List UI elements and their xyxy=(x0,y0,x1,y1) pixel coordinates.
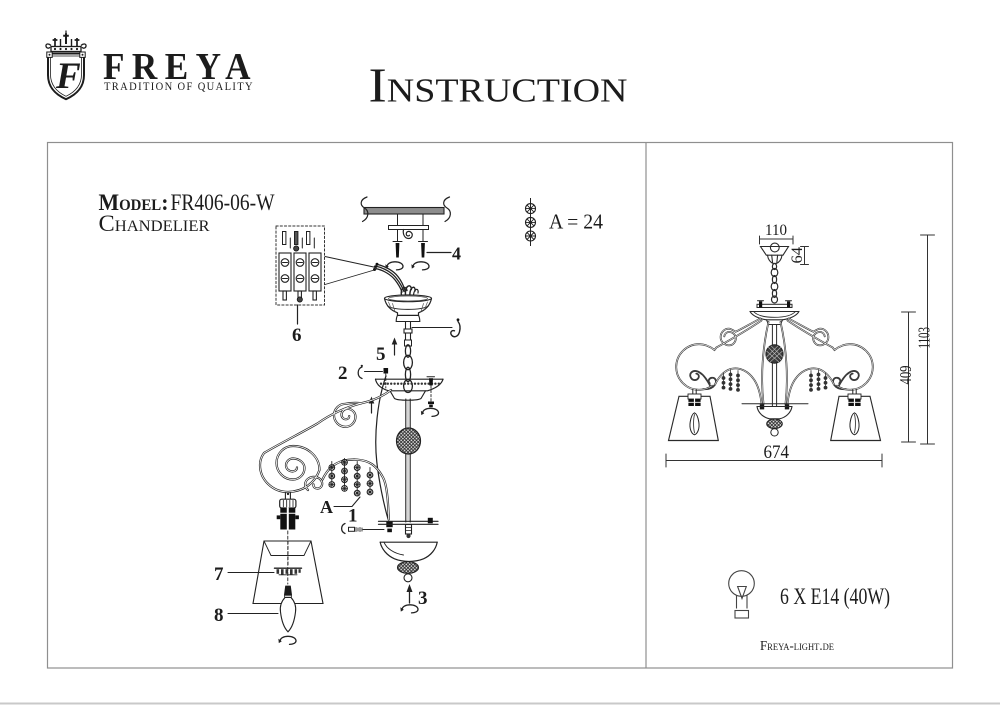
svg-text:1103: 1103 xyxy=(915,327,934,349)
svg-text:4: 4 xyxy=(452,244,461,264)
svg-text:110: 110 xyxy=(765,222,787,239)
svg-text:F: F xyxy=(55,56,81,97)
svg-text:409: 409 xyxy=(896,366,915,385)
svg-text:5: 5 xyxy=(376,344,386,365)
svg-text:A = 24: A = 24 xyxy=(549,210,603,234)
svg-text:6: 6 xyxy=(292,325,302,346)
svg-text:64: 64 xyxy=(789,247,806,264)
svg-text:8: 8 xyxy=(214,605,224,626)
svg-text:Freya-light.de: Freya-light.de xyxy=(760,638,834,653)
svg-text:674: 674 xyxy=(764,443,790,463)
svg-text:6 X E14 (40W): 6 X E14 (40W) xyxy=(780,584,890,609)
svg-text:7: 7 xyxy=(214,564,224,585)
svg-text:TRADITION OF QUALITY: TRADITION OF QUALITY xyxy=(104,81,254,93)
svg-text:A: A xyxy=(320,497,333,517)
svg-text:2: 2 xyxy=(338,363,348,384)
svg-text:1: 1 xyxy=(348,506,358,527)
svg-text:Instruction: Instruction xyxy=(369,58,628,113)
svg-text:Chandelier: Chandelier xyxy=(99,211,210,237)
svg-text:3: 3 xyxy=(418,588,428,609)
